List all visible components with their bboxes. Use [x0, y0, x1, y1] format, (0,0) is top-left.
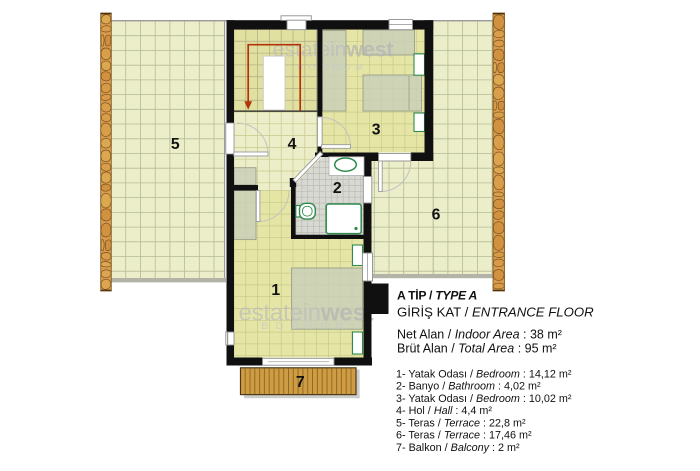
- svg-text:4: 4: [288, 136, 297, 153]
- svg-text:1- Yatak Odası / Bedroom : 14,: 1- Yatak Odası / Bedroom : 14,12 m²: [396, 368, 572, 380]
- svg-text:4- Hol / Hall : 4,4 m²: 4- Hol / Hall : 4,4 m²: [396, 405, 492, 417]
- svg-text:2- Banyo / Bathroom : 4,02 m²: 2- Banyo / Bathroom : 4,02 m²: [396, 381, 541, 393]
- svg-text:A TİP / TYPE A: A TİP / TYPE A: [397, 288, 477, 303]
- svg-text:3: 3: [372, 122, 381, 139]
- svg-text:3- Yatak Odası / Bedroom : 10,: 3- Yatak Odası / Bedroom : 10,02 m²: [396, 393, 572, 405]
- svg-text:Net Alan / Indoor Area : 38 m²: Net Alan / Indoor Area : 38 m²: [397, 328, 562, 342]
- svg-text:7: 7: [296, 374, 305, 391]
- svg-text:5: 5: [171, 136, 180, 153]
- svg-text:5- Teras / Terrace : 22,8 m²: 5- Teras / Terrace : 22,8 m²: [396, 417, 526, 429]
- svg-text:Brüt Alan / Total Area : 95 m²: Brüt Alan / Total Area : 95 m²: [397, 342, 557, 356]
- svg-text:BODRUM: BODRUM: [261, 321, 350, 332]
- svg-text:7- Balkon / Balcony : 2 m²: 7- Balkon / Balcony : 2 m²: [396, 442, 520, 454]
- svg-text:BODRUM: BODRUM: [298, 62, 369, 72]
- svg-text:2: 2: [333, 180, 342, 197]
- svg-text:estateinwest: estateinwest: [273, 38, 394, 62]
- svg-text:GİRİŞ KAT / ENTRANCE FLOOR: GİRİŞ KAT / ENTRANCE FLOOR: [397, 305, 594, 320]
- svg-text:6: 6: [432, 206, 441, 223]
- svg-text:1: 1: [271, 282, 280, 299]
- svg-text:6- Teras / Terrace : 17,46 m²: 6- Teras / Terrace : 17,46 m²: [396, 430, 532, 442]
